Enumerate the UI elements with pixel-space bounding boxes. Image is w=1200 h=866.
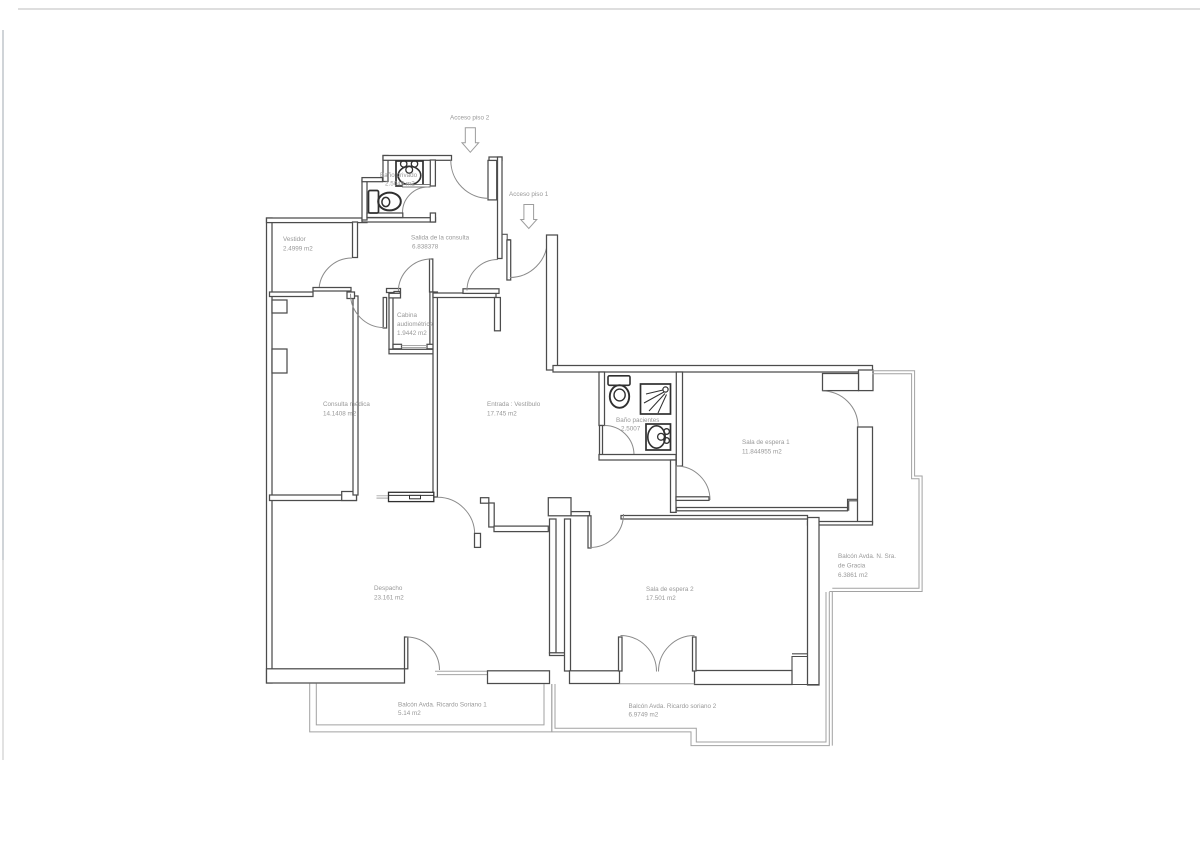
svg-text:Salida de la consulta: Salida de la consulta — [411, 235, 470, 242]
svg-text:Balcón Avda. Ricardo Soriano 1: Balcón Avda. Ricardo Soriano 1 — [398, 702, 487, 709]
svg-text:de Gracia: de Gracia — [838, 563, 866, 570]
svg-text:Acceso piso 1: Acceso piso 1 — [509, 191, 549, 198]
svg-text:14.1408 m2: 14.1408 m2 — [323, 411, 357, 418]
svg-text:Despacho: Despacho — [374, 585, 403, 592]
svg-text:6.9749 m2: 6.9749 m2 — [629, 711, 659, 718]
svg-text:17.501 m2: 17.501 m2 — [646, 595, 676, 602]
svg-text:6.3861 m2: 6.3861 m2 — [838, 572, 868, 579]
svg-text:Vestidor: Vestidor — [283, 236, 306, 243]
svg-text:5.14 m2: 5.14 m2 — [398, 710, 421, 717]
svg-text:23.161 m2: 23.161 m2 — [374, 595, 404, 602]
svg-text:Baño pacientes: Baño pacientes — [616, 417, 659, 424]
svg-text:2.5007: 2.5007 — [621, 426, 641, 433]
svg-text:2.4999 m2: 2.4999 m2 — [283, 246, 313, 253]
svg-text:Consulta médica: Consulta médica — [323, 401, 370, 408]
svg-text:audiométrica: audiométrica — [397, 321, 434, 328]
svg-text:2.5046 m2: 2.5046 m2 — [385, 181, 415, 188]
svg-text:Balcón Avda. N. Sra.: Balcón Avda. N. Sra. — [838, 553, 896, 560]
svg-text:Balcón Avda. Ricardo soriano 2: Balcón Avda. Ricardo soriano 2 — [629, 703, 717, 710]
svg-text:6.838378: 6.838378 — [412, 244, 439, 251]
svg-text:Acceso piso 2: Acceso piso 2 — [450, 115, 490, 122]
svg-text:Sala de espera 2: Sala de espera 2 — [646, 586, 694, 593]
svg-text:Sala de espera 1: Sala de espera 1 — [742, 439, 790, 446]
svg-text:Cabina: Cabina — [397, 312, 417, 319]
svg-text:1.9442 m2: 1.9442 m2 — [397, 330, 427, 337]
svg-text:Entrada : Vestíbulo: Entrada : Vestíbulo — [487, 401, 541, 408]
svg-text:11.844955 m2: 11.844955 m2 — [742, 449, 782, 456]
svg-text:Baño privado: Baño privado — [380, 172, 418, 179]
svg-text:17.745 m2: 17.745 m2 — [487, 411, 517, 418]
